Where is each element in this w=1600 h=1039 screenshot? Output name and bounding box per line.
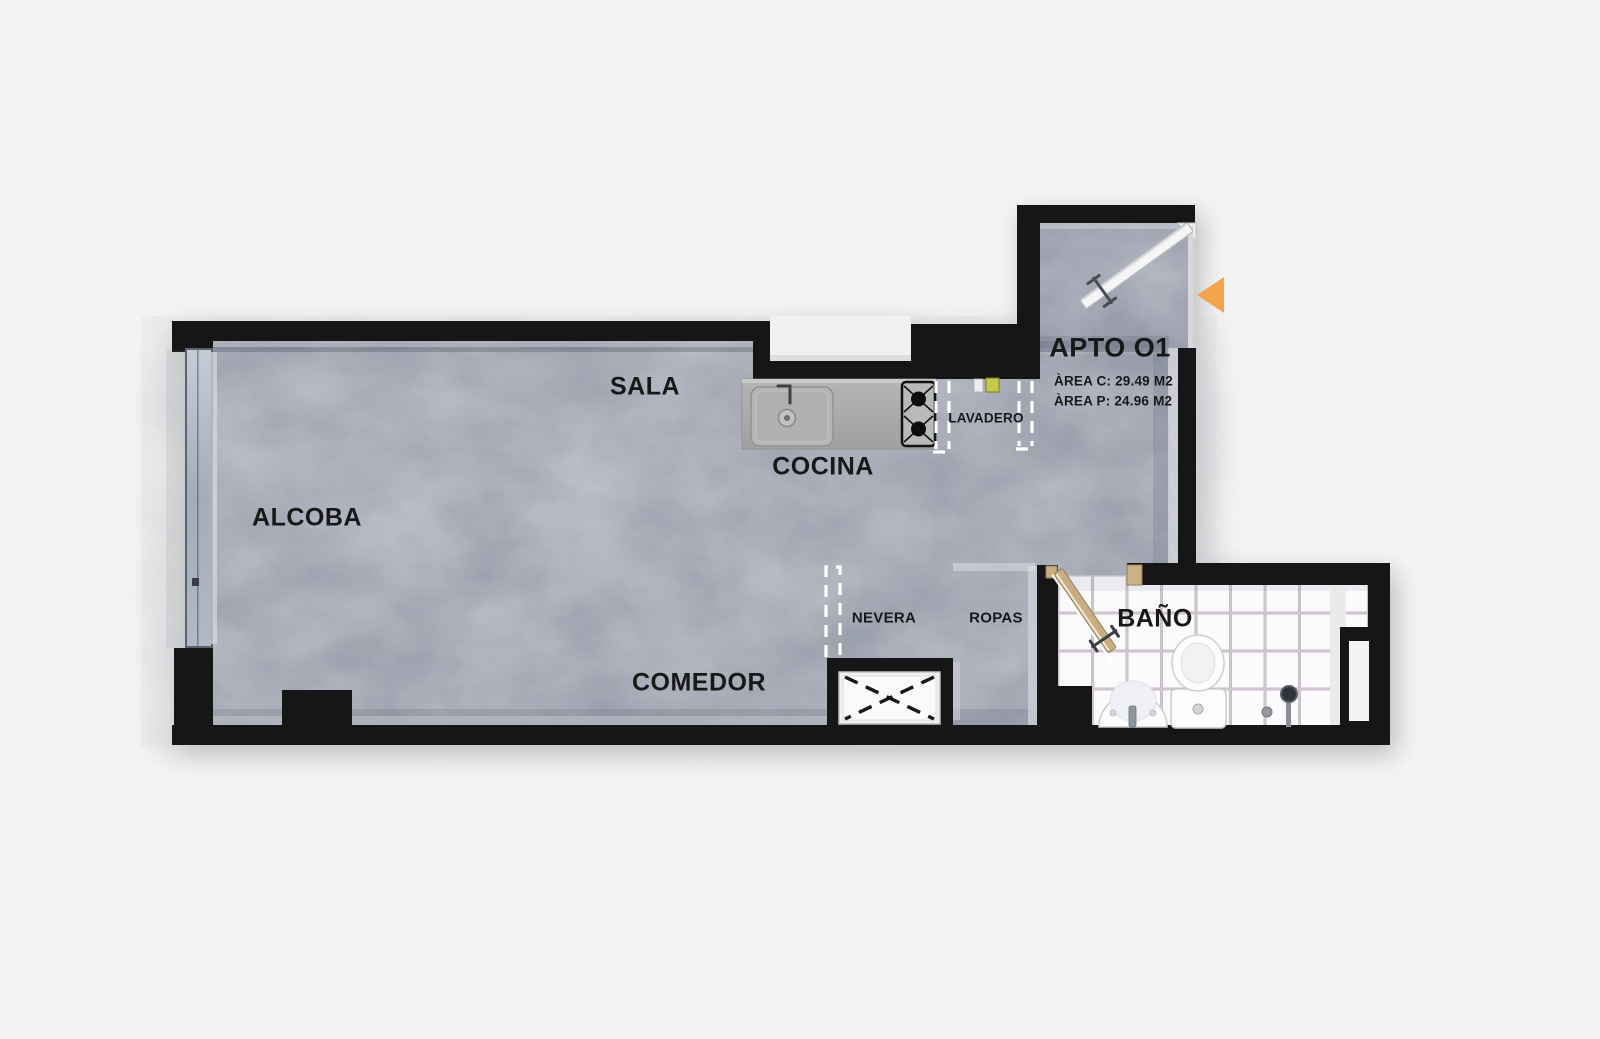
entry-threshold (1188, 226, 1193, 348)
washbasin-tap-left (1110, 710, 1116, 716)
toilet-button (1193, 704, 1203, 714)
duct-x-box (839, 672, 940, 724)
laundry-tap-white (974, 379, 983, 392)
window-inner-sill (211, 352, 217, 644)
wall-kitchen-right (911, 324, 1040, 379)
laundry-tap-green (986, 378, 999, 392)
toilet (1171, 635, 1226, 728)
wall-bath-column (1037, 565, 1058, 745)
wall-bath-right (1368, 563, 1390, 745)
entry-arrow-icon (1197, 277, 1224, 313)
skirting-ropas (953, 563, 1035, 571)
window (166, 348, 217, 648)
pillar (282, 690, 352, 727)
floorplan-canvas: ALCOBA SALA COCINA COMEDOR BAÑO LAVADERO… (0, 0, 1600, 1039)
facade-notch-shade (770, 355, 911, 362)
window-glass (187, 350, 211, 646)
bathroom-door-jamb (1127, 565, 1142, 585)
wall-right (1178, 348, 1196, 567)
skirting-shaft (953, 662, 960, 720)
niche-slot (1349, 641, 1369, 721)
wall-bottom-mid (945, 725, 1058, 745)
wall-bottom-main (172, 725, 845, 745)
washbasin-tap-right (1150, 710, 1156, 716)
window-divider (197, 350, 199, 646)
wall-top-main (172, 321, 770, 341)
skirting-right (1168, 348, 1178, 567)
burner-bottom (911, 422, 926, 437)
stove (902, 382, 935, 446)
shower-head (1281, 686, 1297, 702)
skirting-entry (1040, 223, 1188, 229)
wall-left-bottom (174, 648, 213, 745)
sink-drain-dot (784, 415, 790, 421)
skirting-top (206, 341, 753, 347)
burner-top (911, 392, 926, 407)
wall-top-step (753, 341, 770, 379)
washbasin-faucet (1129, 706, 1136, 727)
window-latch (192, 578, 199, 586)
floor-highlight (190, 336, 1168, 727)
building (166, 205, 1390, 745)
wall-bath-top (1127, 563, 1390, 585)
wall-bath-step (1055, 686, 1092, 731)
wall-entry-top (1017, 205, 1195, 223)
window-outer-shadow (166, 350, 186, 648)
wall-left-top-stub (172, 321, 213, 352)
wall-kitchen-notch (770, 361, 911, 379)
toilet-bowl-inner (1181, 643, 1215, 683)
skirting-column (1028, 566, 1037, 727)
shower-knob (1262, 707, 1272, 717)
wall-entry-left (1017, 205, 1040, 332)
